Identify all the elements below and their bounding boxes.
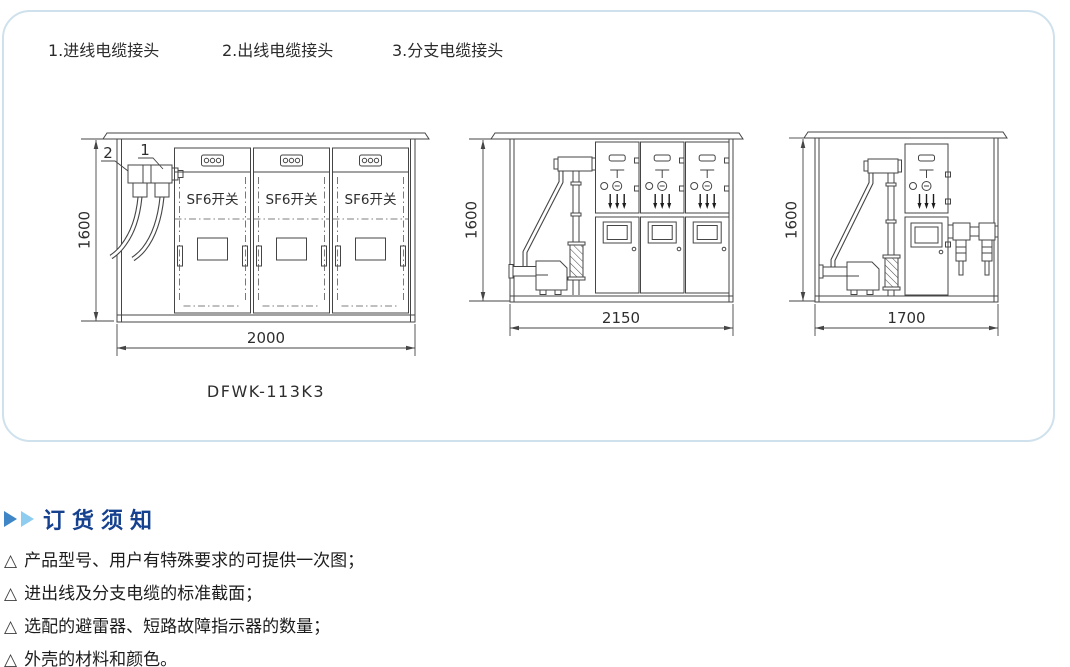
switch-module-2 xyxy=(641,142,685,293)
switch-module xyxy=(905,144,951,295)
width-dimension: 2150 xyxy=(510,304,733,336)
legend-branch-cable: 3.分支电缆接头 xyxy=(392,37,503,61)
catalog-page: 1.进线电缆接头 2.出线电缆接头 3.分支电缆接头 2 xyxy=(0,0,1070,667)
ordering-notes-title: 订货须知 xyxy=(43,503,159,535)
width-dimension: 2000 xyxy=(117,324,415,356)
width-dimension: 1700 xyxy=(815,304,998,336)
note-item: △选配的避雷器、短路故障指示器的数量； xyxy=(4,611,364,644)
cable-riser-assembly xyxy=(509,157,596,295)
callout-outgoing-label: 2 xyxy=(103,144,113,162)
cabinet-roof xyxy=(804,132,1007,138)
note-text: 外壳的材料和颜色。 xyxy=(24,650,177,667)
triangle-bullet-icon: △ xyxy=(4,551,17,571)
callout-incoming-label: 1 xyxy=(140,141,150,159)
height-dimension-label: 1600 xyxy=(463,201,481,239)
switch-panel-2: SF6开关 xyxy=(254,148,330,313)
cabinet-body xyxy=(815,138,998,302)
height-dimension: 1600 xyxy=(783,138,816,301)
note-text: 产品型号、用户有特殊要求的可提供一次图； xyxy=(24,551,364,571)
ordering-notes-header: 订货须知 xyxy=(4,503,159,535)
switch-module-3 xyxy=(686,142,730,293)
height-dimension: 1600 xyxy=(463,139,511,301)
switch-module-1 xyxy=(596,142,640,293)
note-text: 选配的避雷器、短路故障指示器的数量； xyxy=(24,617,330,637)
switch-panel-1: SF6开关 xyxy=(175,148,251,313)
note-item: △进出线及分支电缆的标准截面； xyxy=(4,578,364,611)
height-dimension-label: 1600 xyxy=(76,211,94,249)
cabinet-roof xyxy=(103,133,429,139)
callout-outgoing: 2 xyxy=(101,144,128,171)
branch-cable-connectors xyxy=(948,223,998,275)
section-view-3panel-drawing: 1600 2150 xyxy=(460,125,760,340)
triangle-bullet-icon: △ xyxy=(4,617,17,637)
section-view-1panel-drawing: 1600 1700 xyxy=(780,125,1015,340)
note-item: △产品型号、用户有特殊要求的可提供一次图； xyxy=(4,545,364,578)
legend-outgoing-cable: 2.出线电缆接头 xyxy=(222,37,333,61)
legend-incoming-cable: 1.进线电缆接头 xyxy=(48,37,159,61)
cable-riser-assembly xyxy=(819,159,902,296)
switch-label: SF6开关 xyxy=(187,192,239,208)
switch-label: SF6开关 xyxy=(266,192,318,208)
switch-panel-3: SF6开关 xyxy=(333,148,409,313)
switch-label: SF6开关 xyxy=(345,192,397,208)
model-label: DFWK-113K3 xyxy=(207,382,325,401)
triangle-bullet-icon: △ xyxy=(4,650,17,667)
arrow-triangle-icon xyxy=(4,511,17,527)
arrow-triangle-icon xyxy=(21,511,34,527)
height-dimension: 1600 xyxy=(76,139,115,321)
note-item: △外壳的材料和颜色。 xyxy=(4,644,364,667)
front-view-drawing: 2 1 SF6开关 xyxy=(70,125,470,415)
note-text: 进出线及分支电缆的标准截面； xyxy=(24,584,262,604)
triangle-bullet-icon: △ xyxy=(4,584,17,604)
cabinet-roof xyxy=(491,133,743,139)
ordering-notes-list: △产品型号、用户有特殊要求的可提供一次图； △进出线及分支电缆的标准截面； △选… xyxy=(4,545,364,667)
height-dimension-label: 1600 xyxy=(783,201,801,239)
width-dimension-label: 1700 xyxy=(887,309,925,327)
width-dimension-label: 2000 xyxy=(247,329,285,347)
width-dimension-label: 2150 xyxy=(602,309,640,327)
